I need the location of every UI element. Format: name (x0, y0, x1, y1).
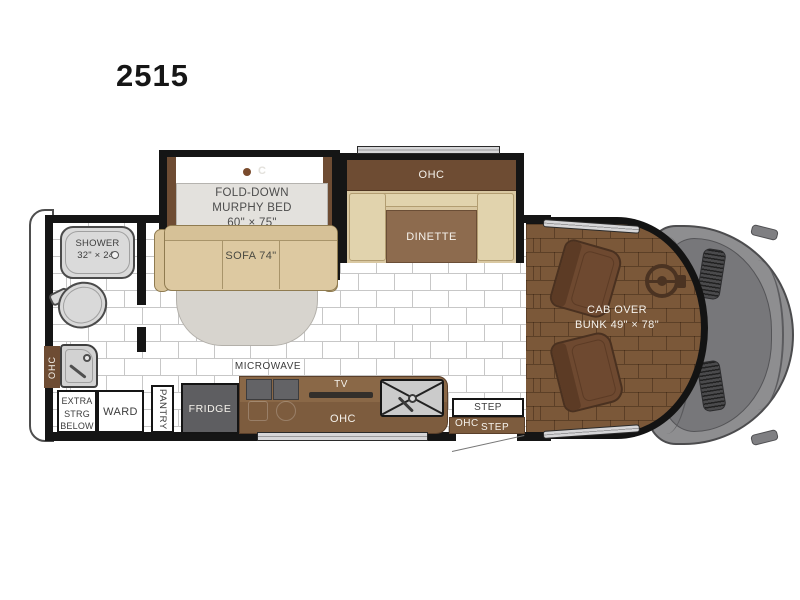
sofa-label: SOFA 74" (165, 246, 337, 266)
cooktop-icon (248, 401, 268, 421)
faucet-icon (83, 354, 91, 362)
entry-step-upper: STEP (452, 398, 524, 417)
kitchen-ohc-label: OHC (300, 412, 386, 426)
murphy-bed-label: FOLD-DOWN (177, 186, 327, 201)
cooktop-burner (246, 379, 272, 400)
dinette-slide-wall-right (516, 153, 524, 263)
extra-storage-label: BELOW (59, 420, 95, 433)
microwave-label: MICROWAVE (222, 360, 314, 373)
steering-spoke (649, 280, 675, 283)
fridge: FRIDGE (181, 383, 239, 434)
cooktop-burner (273, 379, 299, 400)
tv-bar (309, 392, 373, 398)
shower-pan: SHOWER 32" × 24" (60, 226, 135, 279)
cab-over-line1: CAB OVER (538, 303, 696, 318)
murphy-bed-label: MURPHY BED (177, 201, 327, 216)
door-swing-line (452, 435, 524, 452)
murphy-light-label: C (258, 165, 266, 177)
murphy-cabinet-strip (167, 157, 176, 229)
dinette-slide-wall-left (339, 153, 347, 263)
extra-storage-label: EXTRA (59, 395, 95, 408)
steering-column (677, 275, 686, 288)
extra-storage: EXTRA STRG BELOW (57, 390, 97, 433)
sink-faucet-icon (408, 394, 417, 403)
kitchen-counter: TV OHC (239, 376, 448, 434)
extra-storage-label: STRG (59, 408, 95, 421)
burner-ring-icon (276, 401, 296, 421)
shower-size: 32" × 24" (62, 250, 133, 262)
tv-label: TV (323, 378, 359, 391)
sofa-back (165, 226, 337, 241)
dinette-bench-right (477, 193, 514, 261)
wall-bathroom-stub (137, 327, 146, 352)
ceiling-light-icon (243, 168, 251, 176)
side-mirror-icon (750, 429, 779, 446)
window-kitchen (257, 432, 428, 441)
kitchen-sink (380, 379, 444, 417)
wall-left (45, 215, 53, 441)
murphy-slide-wall-top (159, 150, 340, 157)
shower-head-icon (111, 251, 119, 259)
dinette-slide-wall-top (339, 153, 524, 160)
shower-label: SHOWER (62, 238, 133, 250)
entry-ohc-label: OHC (455, 418, 479, 429)
dinette-ohc: OHC (347, 160, 516, 191)
bathroom-ohc-label: OHC (47, 356, 57, 379)
entry-step-lower: OHC STEP (449, 417, 525, 434)
cab-over-line2: BUNK 49" × 78" (538, 318, 696, 333)
wall-bathroom (137, 218, 146, 305)
pantry-label: PANTRY (157, 389, 168, 430)
bathroom-sink (60, 344, 98, 388)
wardrobe: WARD (97, 390, 144, 433)
steering-wheel-icon (645, 264, 679, 298)
bathroom-ohc: OHC (44, 346, 60, 388)
faucet-handle (69, 364, 86, 378)
floorplan-canvas: 2515 C FOLD-DOWN MURPHY BED 60" × 75" OH… (0, 0, 800, 600)
side-mirror-icon (750, 224, 779, 241)
wall-top-left (45, 215, 165, 223)
sofa: SOFA 74" (164, 225, 338, 291)
dinette-table: DINETTE (386, 210, 477, 263)
entry-step-label: STEP (481, 422, 509, 433)
window-dinette (357, 146, 500, 154)
pantry: PANTRY (151, 385, 174, 433)
dinette-bench-left (349, 193, 386, 261)
cab-over-bunk-label: CAB OVER BUNK 49" × 78" (538, 303, 696, 333)
model-number: 2515 (116, 58, 189, 94)
